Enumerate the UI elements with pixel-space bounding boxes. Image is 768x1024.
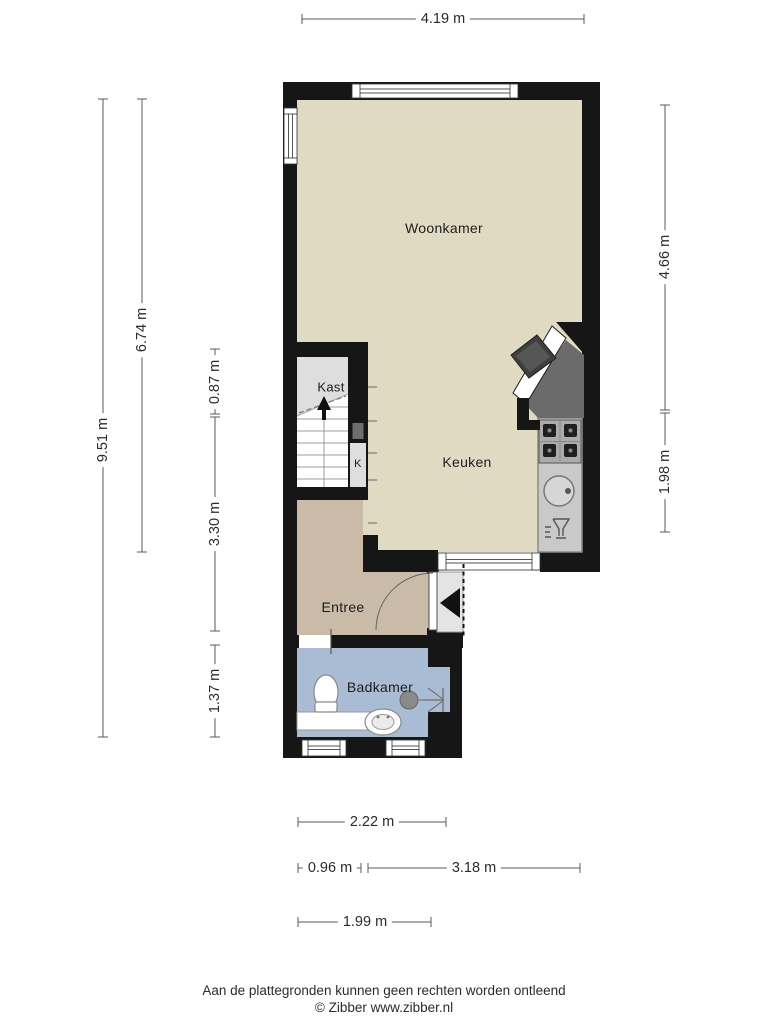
footer-disclaimer: Aan de plattegronden kunnen geen rechten… (0, 983, 768, 998)
dim-left-stairs: 3.30 m (207, 497, 223, 551)
dim-left-bath: 1.37 m (207, 664, 223, 718)
dim-left-upper: 6.74 m (134, 303, 150, 357)
room-label-keuken: Keuken (442, 454, 491, 470)
dim-bottom-entree: 0.96 m (303, 860, 357, 876)
room-label-k: K (354, 458, 362, 470)
dim-left-total: 9.51 m (95, 413, 111, 467)
dim-bottom-bath: 2.22 m (345, 814, 399, 830)
floorplan-drawing (0, 0, 768, 1024)
wall-recess-inner (353, 423, 364, 439)
toilet-icon (314, 675, 338, 712)
kitchen-sink-icon (544, 476, 574, 506)
dim-top-width: 4.19 m (416, 11, 470, 27)
dim-left-kast: 0.87 m (207, 355, 223, 409)
dim-bottom-lower: 1.99 m (338, 914, 392, 930)
floorplan-page: Woonkamer Keuken Kast K Entree Badkamer … (0, 0, 768, 1024)
window-icon (352, 84, 518, 98)
dim-bottom-keuken: 3.18 m (447, 860, 501, 876)
room-label-woonkamer: Woonkamer (405, 220, 483, 236)
dim-right-upper: 4.66 m (657, 230, 673, 284)
washbasin-icon (365, 709, 401, 735)
footer-copyright: © Zibber www.zibber.nl (0, 1000, 768, 1015)
stove-icon (539, 420, 581, 463)
room-label-kast: Kast (317, 380, 344, 395)
bath-counter-icon (297, 712, 371, 730)
front-door-leaf (429, 572, 437, 630)
kitchen-fixtures (538, 418, 582, 552)
window-icon (302, 740, 346, 756)
room-label-entree: Entree (321, 599, 364, 615)
window-icon (386, 740, 425, 756)
dim-right-lower: 1.98 m (657, 445, 673, 499)
window-icon (284, 108, 297, 164)
room-label-badkamer: Badkamer (347, 679, 413, 695)
window-icon (438, 553, 540, 570)
